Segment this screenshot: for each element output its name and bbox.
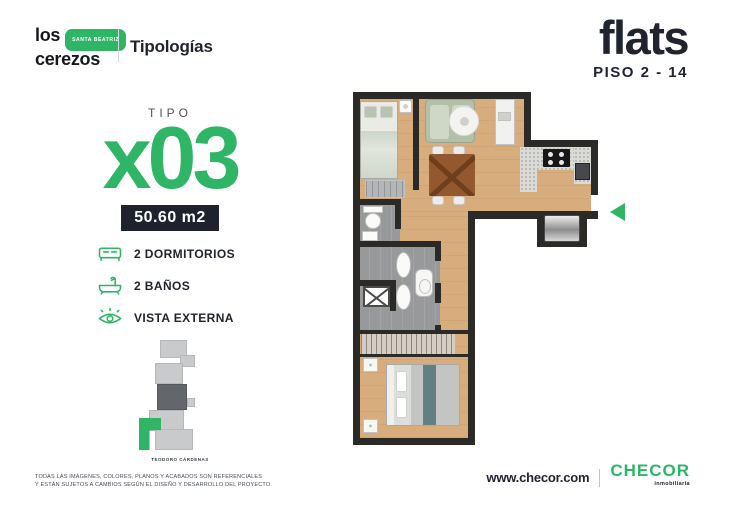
washing-machine	[363, 286, 390, 307]
bed-icon	[96, 243, 124, 264]
plan-floor-range: PISO 2 - 14	[593, 64, 688, 81]
floor-plan	[353, 92, 605, 454]
wall-bedroom1-living	[413, 92, 419, 190]
wall	[524, 140, 598, 147]
logo-line1: los	[35, 27, 60, 44]
unit-code: x03	[0, 108, 340, 208]
plan-title: flats	[593, 14, 688, 62]
ceiling-light	[399, 100, 412, 113]
brand-logo: CHECOR inmobiliaria	[610, 463, 690, 492]
wall	[358, 330, 468, 334]
footer-divider	[599, 469, 600, 487]
area-badge: 50.60 m2	[121, 205, 219, 231]
stove	[543, 149, 570, 167]
plan-header: flats PISO 2 - 14	[593, 14, 688, 81]
eye-icon	[96, 307, 124, 328]
brand-name: CHECOR	[610, 463, 690, 478]
wall	[468, 211, 475, 445]
feature-label-bathrooms: 2 BAÑOS	[134, 279, 190, 293]
section-title: Tipologías	[130, 37, 213, 57]
website-url: www.checor.com	[486, 470, 589, 485]
toilet	[415, 269, 433, 297]
dining-chair	[453, 196, 465, 205]
feature-label-bedrooms: 2 DORMITORIOS	[134, 247, 235, 261]
minimap-block	[155, 429, 193, 450]
street-caption: TEODORO CÁRDENAS	[110, 457, 250, 462]
dining-table	[429, 154, 475, 196]
minimap-block	[187, 398, 195, 407]
wall	[353, 438, 475, 445]
toilet-bowl	[365, 213, 381, 229]
feature-list: 2 DORMITORIOS 2 BAÑOS VISTA EXTERNA	[96, 243, 235, 339]
bathtub-icon	[96, 275, 124, 296]
wall	[353, 92, 531, 99]
dresser	[365, 180, 405, 198]
minimap-block	[155, 363, 183, 384]
header-divider	[118, 29, 119, 62]
wall	[591, 140, 598, 195]
breakfast-bar	[495, 99, 515, 145]
nightstand	[363, 358, 378, 372]
wall	[435, 247, 441, 261]
wall	[395, 199, 401, 229]
closet-strip	[361, 334, 455, 354]
disclaimer-line1: TODAS LAS IMÁGENES, COLORES, PLANOS Y AC…	[35, 474, 272, 482]
wall	[468, 211, 544, 219]
footer-brand-area: www.checor.com CHECOR inmobiliaria	[486, 463, 690, 492]
bar-item	[498, 112, 511, 121]
entrance-arrow-icon	[610, 203, 625, 221]
feature-view: VISTA EXTERNA	[96, 307, 235, 328]
kitchen-counter	[520, 147, 537, 192]
minimap-block-dark	[157, 384, 187, 410]
kitchen-sink	[575, 163, 590, 180]
wall	[358, 354, 468, 357]
disclaimer: TODAS LAS IMÁGENES, COLORES, PLANOS Y AC…	[35, 474, 272, 489]
wall	[435, 283, 441, 303]
bed-main-top	[360, 101, 398, 179]
wall	[353, 199, 401, 205]
feature-bathrooms: 2 BAÑOS	[96, 275, 235, 296]
lamp	[460, 117, 469, 126]
toilet-tank	[363, 206, 383, 213]
feature-bedrooms: 2 DORMITORIOS	[96, 243, 235, 264]
area-badge-wrap: 50.60 m2	[0, 205, 340, 231]
disclaimer-line2: Y ESTÁN SUJETOS A CAMBIOS SEGÚN EL DISEÑ…	[35, 482, 272, 490]
vanity-sink	[396, 252, 411, 278]
water-heater	[544, 215, 580, 242]
feature-label-view: VISTA EXTERNA	[134, 311, 234, 325]
logo: los SANTA BEATRIZ cerezos	[35, 27, 126, 68]
wall	[524, 92, 531, 147]
bathroom-sink	[362, 231, 378, 241]
bed-main-bottom	[386, 364, 460, 426]
dining-chair	[432, 196, 444, 205]
nightstand	[363, 419, 378, 433]
site-mini-map	[128, 334, 232, 455]
wall	[353, 241, 441, 247]
brochure-page: los SANTA BEATRIZ cerezos Tipologías fla…	[0, 0, 730, 516]
logo-line2: cerezos	[35, 51, 126, 68]
vanity-sink	[396, 284, 411, 310]
wall	[353, 92, 360, 445]
